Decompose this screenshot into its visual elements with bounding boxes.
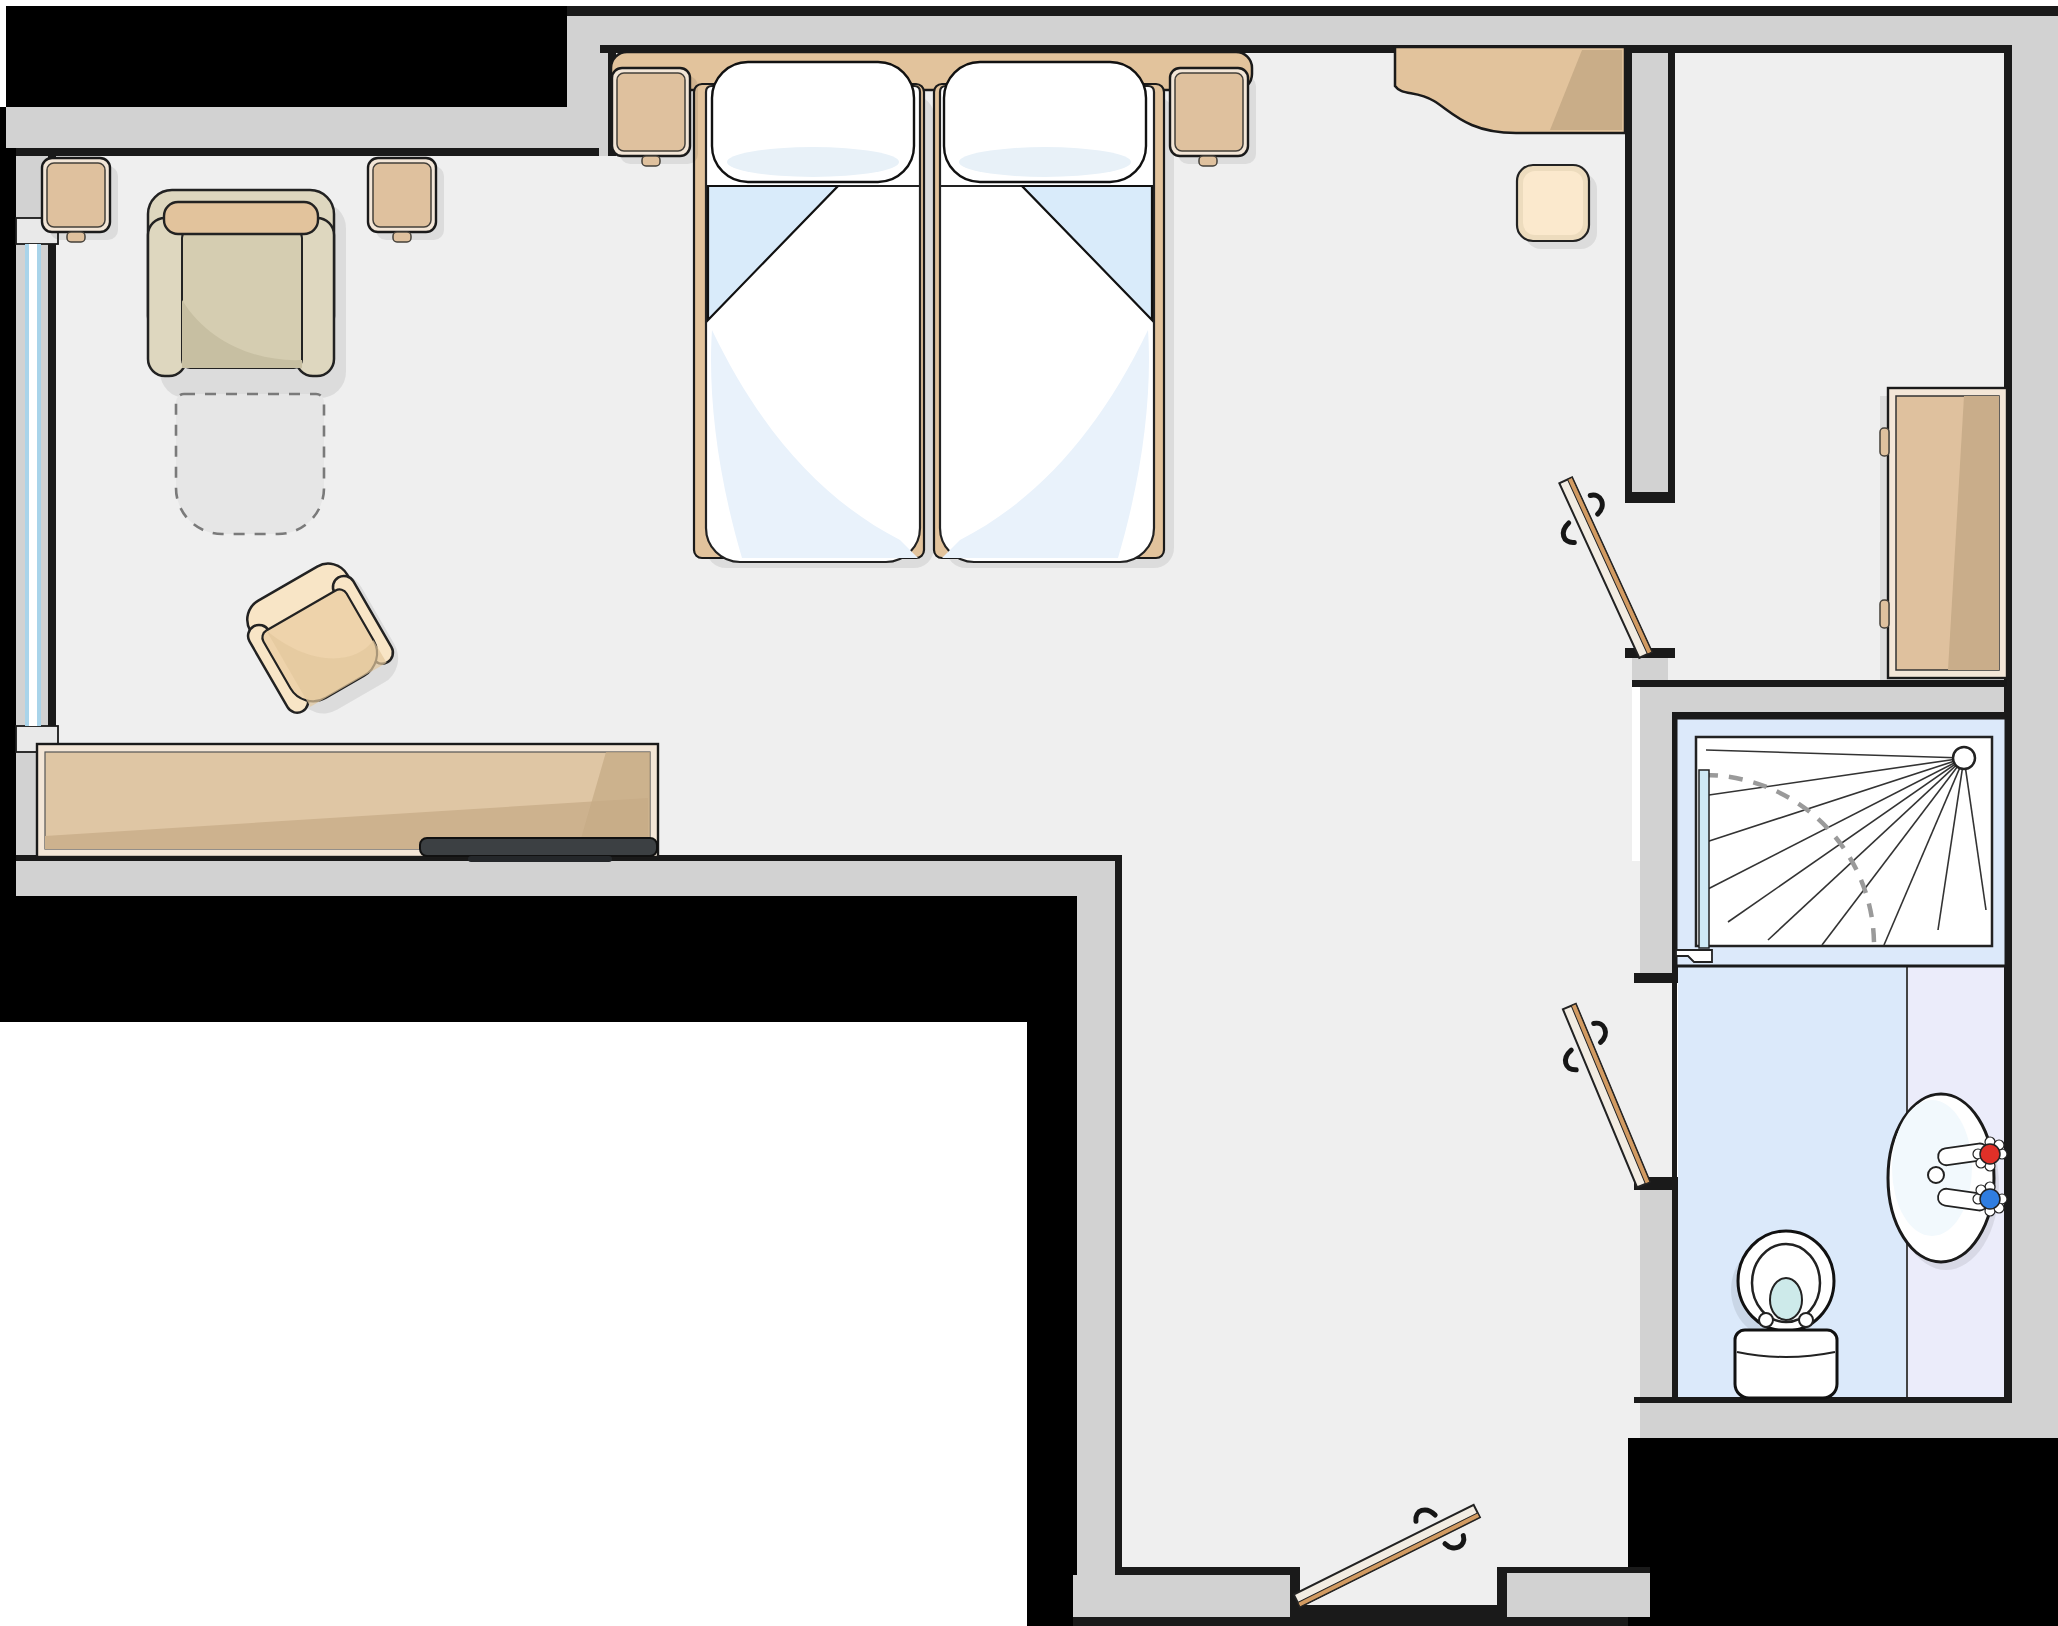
wall-bathroom-top	[1640, 687, 2012, 712]
entry-threshold-line	[1297, 1605, 1497, 1617]
desk-stool	[1517, 165, 1597, 249]
table-knob	[67, 232, 85, 242]
wall-bathroom-left-lower	[1640, 1190, 1672, 1403]
window-pane-line	[37, 244, 41, 726]
table-top	[373, 163, 431, 227]
sofa	[148, 190, 346, 398]
sofa-arm-left	[148, 218, 186, 376]
side-table-left	[42, 158, 118, 242]
floor-plan-scene	[0, 0, 2058, 1626]
wardrobe-handle	[1880, 600, 1889, 628]
shower	[1676, 718, 2006, 966]
wall-below-top-left-mass	[6, 107, 591, 148]
bed-left	[694, 62, 934, 568]
wall-line-top	[567, 6, 2058, 16]
exterior-strip-mid	[1027, 1022, 1077, 1626]
window-pane-line	[25, 244, 29, 726]
wall-bottom-left	[16, 861, 1115, 896]
wall-line	[1115, 861, 1122, 1575]
table-top	[47, 163, 105, 227]
toilet	[1731, 1231, 1837, 1398]
wall-top	[567, 16, 2058, 45]
tap-knob-blue	[1980, 1189, 2000, 1209]
pullout-outline	[176, 394, 324, 534]
wall-bottom-entry-left	[1073, 1575, 1290, 1617]
nightstand-top	[1175, 73, 1243, 151]
stool-seat	[1523, 171, 1583, 235]
toilet-water	[1770, 1278, 1802, 1320]
bed-right	[934, 62, 1174, 568]
wall-hallway-left	[1077, 861, 1115, 1575]
shower-head-icon	[1953, 747, 1975, 769]
exterior-strip-left	[0, 107, 16, 896]
floor-hallway	[1115, 861, 1640, 1573]
door-jamb-bathroom-top	[1634, 973, 1678, 983]
nightstand-knob	[642, 156, 660, 166]
table-knob	[393, 232, 411, 242]
wall-line	[1668, 53, 1675, 492]
toilet-hinge	[1759, 1313, 1773, 1327]
floor-plan-drawing	[0, 0, 2058, 1626]
wall-bathroom-left-upper	[1640, 687, 1672, 973]
wall-line	[1115, 1567, 1297, 1575]
toilet-tank	[1735, 1330, 1837, 1398]
shower-glass-door	[1699, 770, 1709, 948]
wall-bottom-entry-right	[1507, 1573, 1650, 1617]
wardrobe	[1880, 388, 2007, 686]
wall-bathroom-bottom	[1640, 1403, 2012, 1438]
pillow-shading	[727, 147, 899, 177]
nightstand-right	[1170, 68, 1256, 166]
sink-drain-icon	[1928, 1167, 1944, 1183]
tv-body	[420, 838, 657, 856]
exterior-mass-bottom-right	[1628, 1438, 2058, 1626]
door-opening-line	[1672, 983, 1677, 1177]
pillow-shading	[959, 147, 1131, 177]
wall-partition	[1632, 45, 1668, 492]
wardrobe-handle	[1880, 428, 1889, 456]
door-jamb-entry-right	[1497, 1567, 1507, 1626]
exterior-mass-bottom-left	[0, 896, 1077, 1022]
wall-line	[1507, 1567, 1650, 1573]
nightstand-top	[617, 73, 685, 151]
nightstand-left	[612, 68, 698, 166]
exterior-mass-top-left	[6, 6, 567, 107]
tap-knob-red	[1980, 1144, 2000, 1164]
wall-step	[567, 16, 608, 156]
door-jamb-bedroom-top	[1625, 492, 1675, 503]
wall-line	[16, 148, 599, 156]
side-table-right	[368, 158, 444, 242]
toilet-hinge	[1799, 1313, 1813, 1327]
wall-line	[1672, 1190, 1678, 1397]
wall-right	[2012, 16, 2058, 1438]
nightstand-knob	[1199, 156, 1217, 166]
tv-stand	[468, 856, 612, 862]
sofa-back-cushion	[164, 202, 318, 234]
